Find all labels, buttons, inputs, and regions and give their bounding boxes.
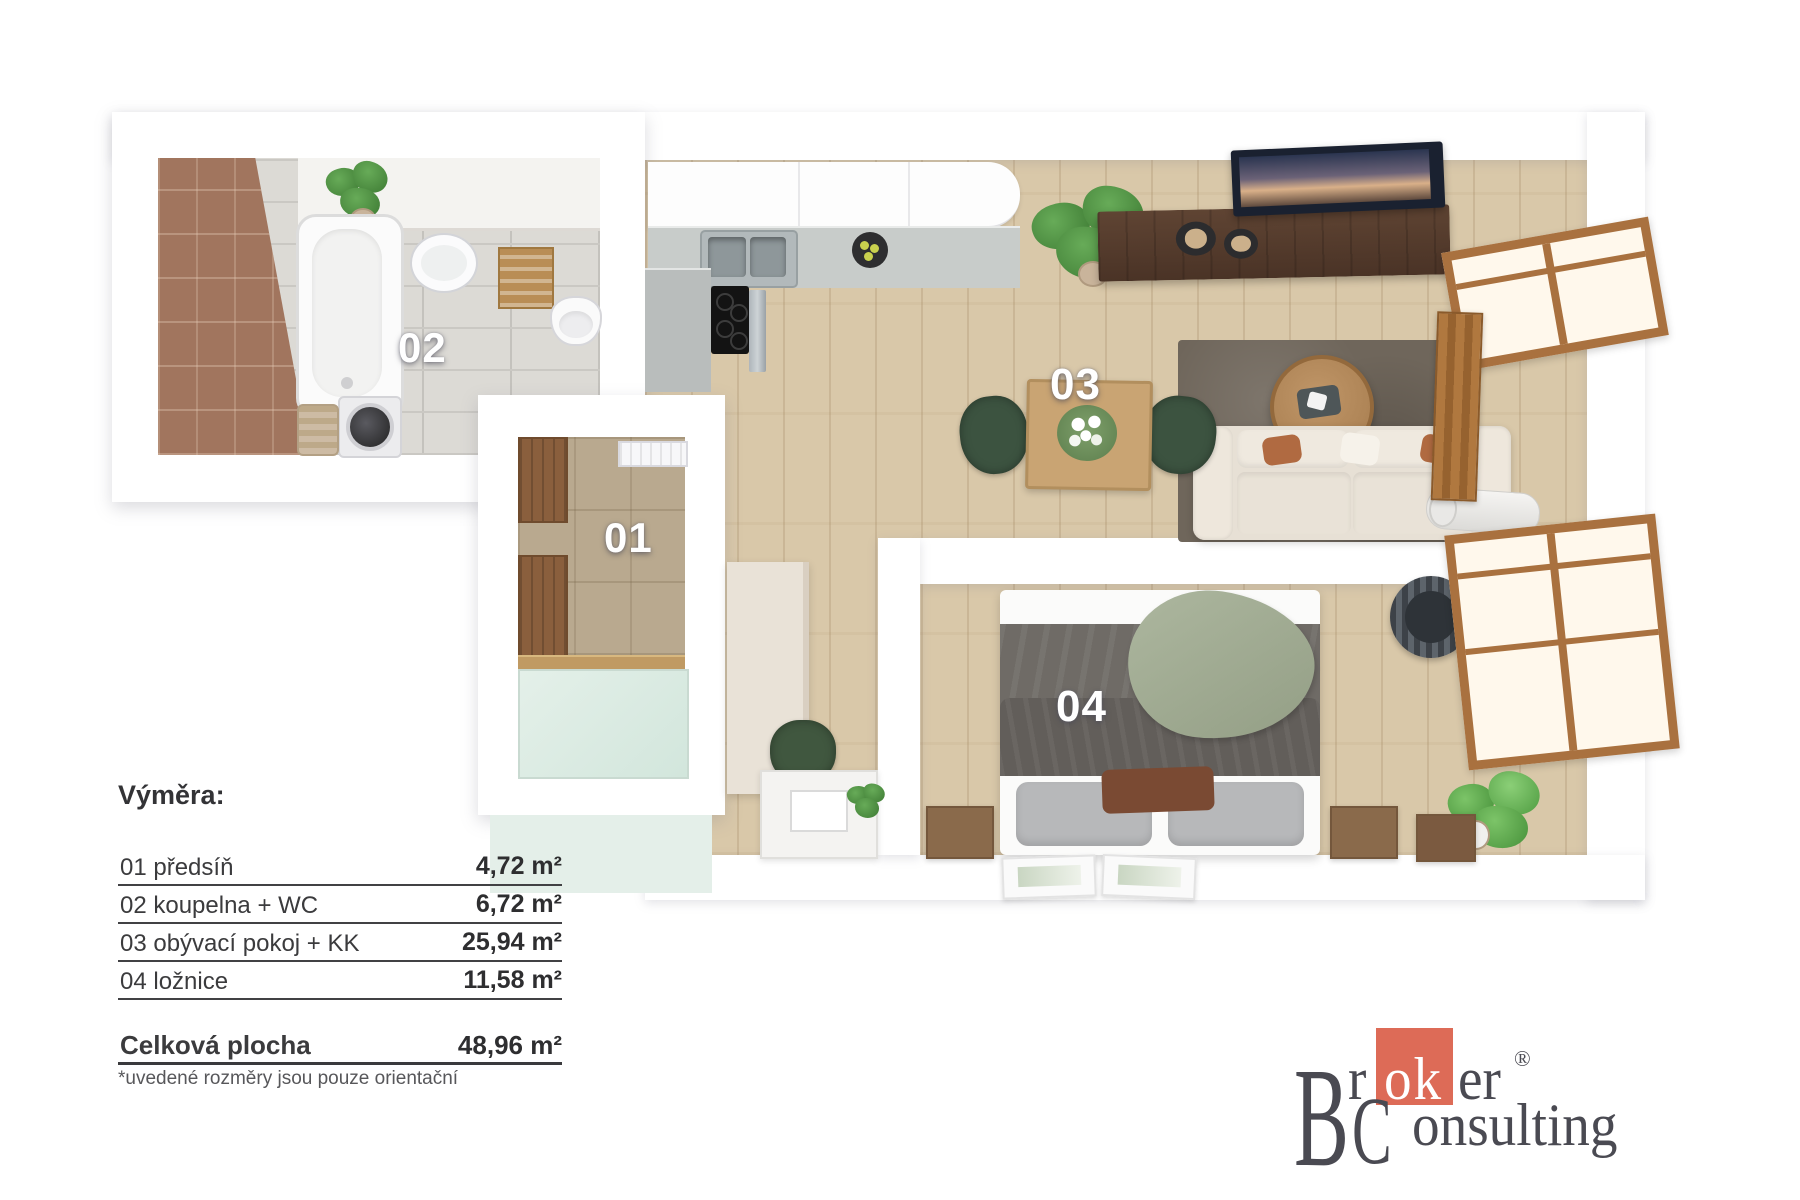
bedroom-window	[1444, 514, 1680, 771]
tv	[1231, 141, 1446, 216]
room-label-bedroom: 04	[1056, 682, 1107, 732]
legend-room-name: 04 ložnice	[120, 968, 228, 996]
logo-bottom-rest: onsulting	[1412, 1095, 1617, 1155]
bathtub	[296, 214, 404, 418]
legend-room-name: 03 obývací pokoj + KK	[120, 930, 359, 958]
fruit-bowl	[852, 232, 888, 268]
logo-registered-mark: ®	[1514, 1048, 1531, 1070]
hall-wardrobe-lower	[518, 555, 568, 659]
accent-pillow	[1261, 433, 1303, 466]
room-label-hall: 01	[604, 514, 653, 562]
legend-room-name: 02 koupelna + WC	[120, 892, 318, 920]
legend-room-area: 4,72 m²	[476, 852, 562, 881]
room-label-bathroom: 02	[398, 324, 447, 372]
floorplan-page: 02 01 03 04 Výměra: 01 předsíň 4,72 m² 0…	[0, 0, 1800, 1200]
floor-poster	[1101, 854, 1197, 900]
bathroom-sink	[410, 233, 478, 293]
toilet-seat	[559, 311, 593, 339]
bathtub-drain	[341, 377, 353, 389]
legend-total-label: Celková plocha	[120, 1030, 311, 1061]
legend-room-area: 25,94 m²	[462, 928, 562, 957]
legend-room-name: 01 předsíň	[120, 854, 233, 882]
hall-wardrobe-upper	[518, 437, 568, 523]
logo-letter-c: C	[1352, 1083, 1392, 1179]
nightstand-right	[1330, 806, 1398, 859]
kitchen-lower-cabinet	[645, 268, 711, 392]
kitchen-sink	[700, 230, 798, 288]
logo-letter-b: B	[1294, 1046, 1349, 1188]
sink-basin-right	[750, 237, 786, 277]
nightstand-left	[926, 806, 994, 859]
storage-box	[1416, 814, 1476, 862]
bed	[1000, 590, 1320, 855]
legend-room-area: 6,72 m²	[476, 890, 562, 919]
legend-row: 03 obývací pokoj + KK 25,94 m²	[118, 924, 562, 962]
oven-front	[749, 290, 766, 372]
sink-basin-left	[708, 237, 746, 277]
cooktop	[711, 286, 749, 354]
accent-bed-pillow	[1101, 766, 1214, 814]
tv-screen	[1239, 149, 1431, 207]
window-shutter-panel	[1431, 311, 1484, 501]
legend-room-area: 11,58 m²	[463, 966, 562, 995]
legend-total-area: 48,96 m²	[458, 1030, 562, 1061]
desk-plant	[845, 782, 889, 826]
decor-tray	[1176, 221, 1217, 256]
entrance-door-glass	[518, 669, 689, 779]
kitchen-upper-cabinets	[648, 162, 1020, 228]
tv-sideboard	[1097, 204, 1450, 281]
legend-row: 02 koupelna + WC 6,72 m²	[118, 886, 562, 924]
decor-tray-small	[1224, 228, 1259, 259]
legend-total-row: Celková plocha 48,96 m²	[118, 1026, 562, 1065]
flower-bouquet	[1057, 404, 1118, 461]
air-conditioner	[618, 441, 688, 467]
washing-machine-door	[346, 403, 394, 451]
bathtub-basin	[312, 229, 382, 397]
legend-title: Výměra:	[118, 780, 225, 811]
washing-machine	[338, 396, 402, 458]
legend-footnote: *uvedené rozměry jsou pouze orientační	[118, 1068, 458, 1090]
desk-pad	[790, 790, 848, 832]
white-pillow	[1339, 432, 1381, 467]
room-label-living-room: 03	[1050, 360, 1101, 410]
sink-bowl	[421, 245, 467, 281]
laundry-basket	[297, 404, 339, 456]
legend-row: 04 ložnice 11,58 m²	[118, 962, 562, 1000]
floor-poster	[1001, 854, 1096, 899]
legend-row: 01 předsíň 4,72 m²	[118, 848, 562, 886]
sofa-seat	[1237, 472, 1351, 534]
toilet	[550, 296, 602, 346]
towel-cabinet	[498, 247, 554, 309]
